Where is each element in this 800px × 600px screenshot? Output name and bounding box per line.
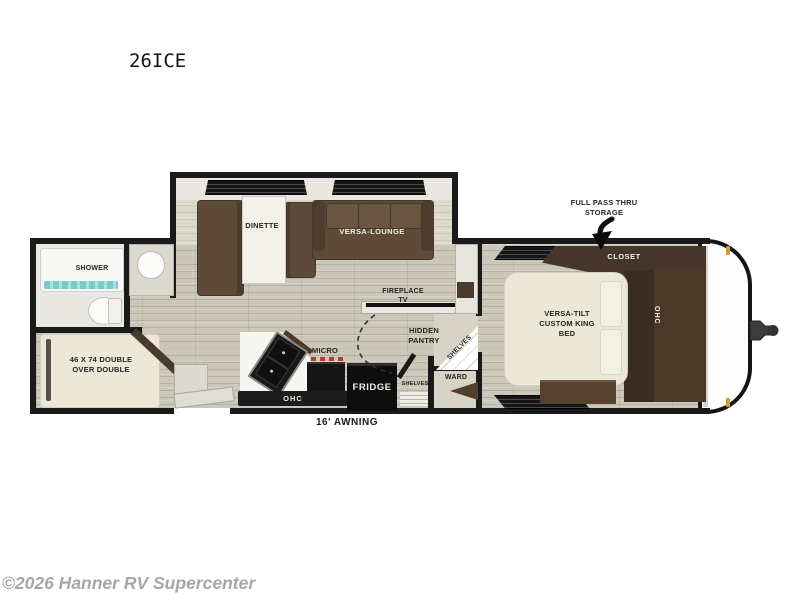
sofa-cushion-2 [358,203,391,229]
sofa-armrest-left [313,201,325,251]
sofa-armrest-right [421,201,433,251]
slideout-window-left [205,180,307,195]
lower-shelf-unit [400,392,428,406]
sofa-cushion-1 [326,203,359,229]
vanity-sink [137,251,165,279]
bedroom-nightstand [540,380,616,404]
hitch [750,321,774,340]
bedroom-ohc-label: OHC [652,306,661,325]
copyright-watermark: ©2026 Hanner RV Supercenter [2,573,255,594]
fireplace-insert [457,282,474,298]
hitch-ball [768,325,779,336]
wall-bathroom-bottom [30,327,142,333]
wall-bottom-main [230,408,710,414]
micro-label: MICRO [303,346,347,356]
wall-slide-right [452,172,458,244]
sink-drain-bottom [269,369,273,373]
dinette-label: DINETTE [234,221,290,231]
king-bed-pillow-bottom [600,329,622,375]
slideout-window-right [332,180,426,195]
kitchen-ohc-label: OHC [283,394,303,404]
lower-shelves-label: SHELVES [398,381,432,388]
bedroom-ohc-cabinet [624,270,706,402]
king-bed-pillow-top [600,281,622,327]
wall-slide-top [170,172,458,178]
awning-label: 16' AWNING [262,416,432,429]
ward-label: WARD [434,373,478,382]
cap-marker-light-top [726,246,730,255]
sofa-cushion-3 [390,203,422,229]
hidden-pantry-label: HIDDEN PANTRY [398,326,450,346]
wall-top-right [452,238,710,244]
versa-lounge-label: VERSA-LOUNGE [332,227,412,237]
storage-arrow-shaft [600,219,612,237]
fireplace-cabinet [455,244,478,314]
fridge-label: FRIDGE [353,382,392,394]
floorplan-page: 26ICE DINETTE VERSA-LOUNGE SHOWER [0,0,800,600]
wall-bottom-left [30,408,174,414]
king-bed-label: VERSA-TILT CUSTOM KING BED [538,309,596,338]
dinette-bench-left [197,200,244,296]
shower-water [44,281,118,289]
pass-thru-storage-label: FULL PASS THRU STORAGE [556,198,652,218]
closet-label: CLOSET [596,252,652,262]
bedroom-ohc-cabinet-inner [624,270,654,402]
fridge: FRIDGE [347,363,397,411]
page-title: 26ICE [129,50,186,72]
toilet-tank [108,298,122,324]
kitchen-ohc-bar: OHC [238,391,348,406]
cap-marker-light-bottom [726,398,730,407]
shower-label: SHOWER [64,264,120,273]
wall-left-end [30,238,36,414]
dinette-table [242,196,286,284]
bunk-bed-rail [46,339,51,401]
bunk-bed-label: 46 X 74 DOUBLE OVER DOUBLE [61,355,141,375]
fireplace-tv-label: FIREPLACE TV [378,287,428,305]
sink-drain-top [281,351,285,355]
stove-burner-marks [311,357,343,361]
